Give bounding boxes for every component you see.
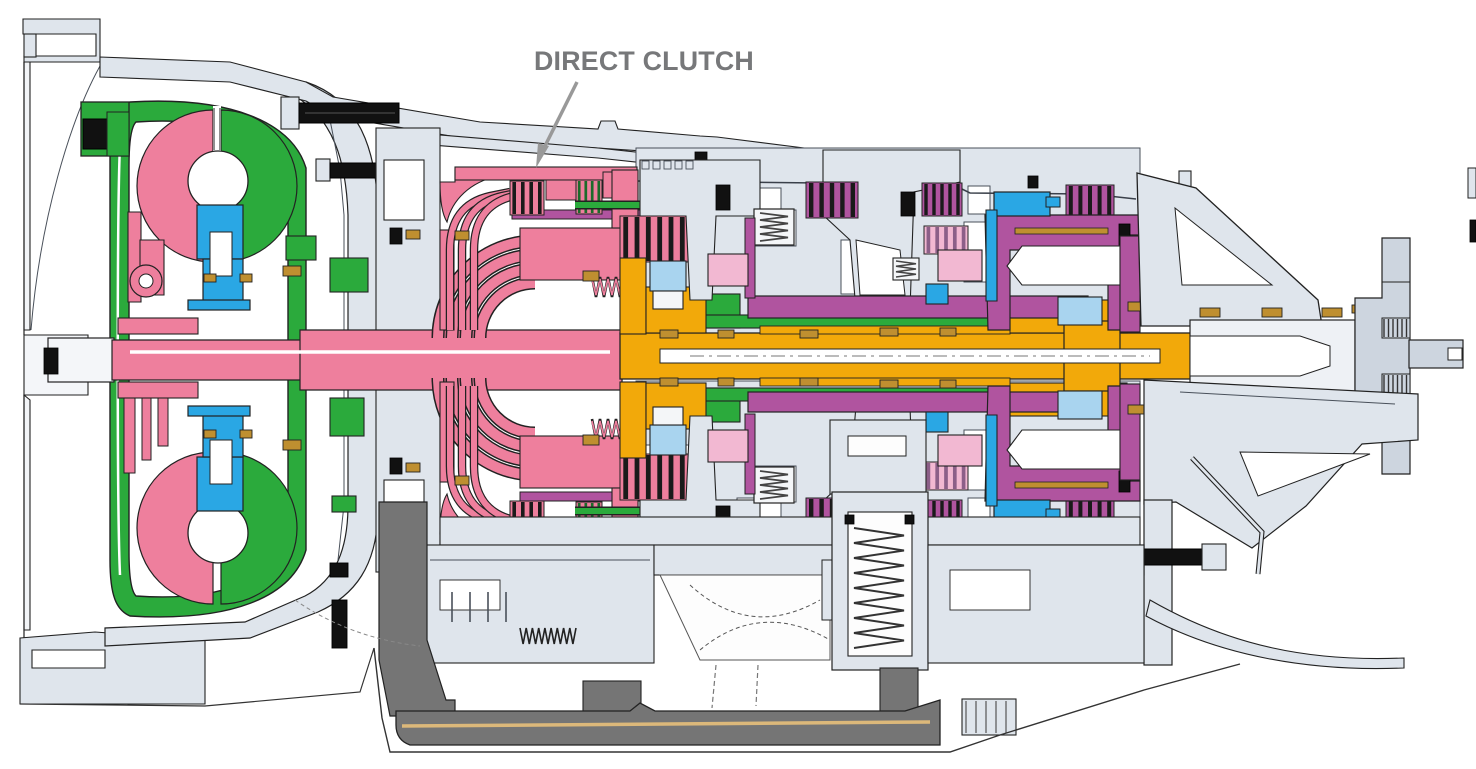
svg-text:DIRECT CLUTCH: DIRECT CLUTCH xyxy=(534,46,754,76)
